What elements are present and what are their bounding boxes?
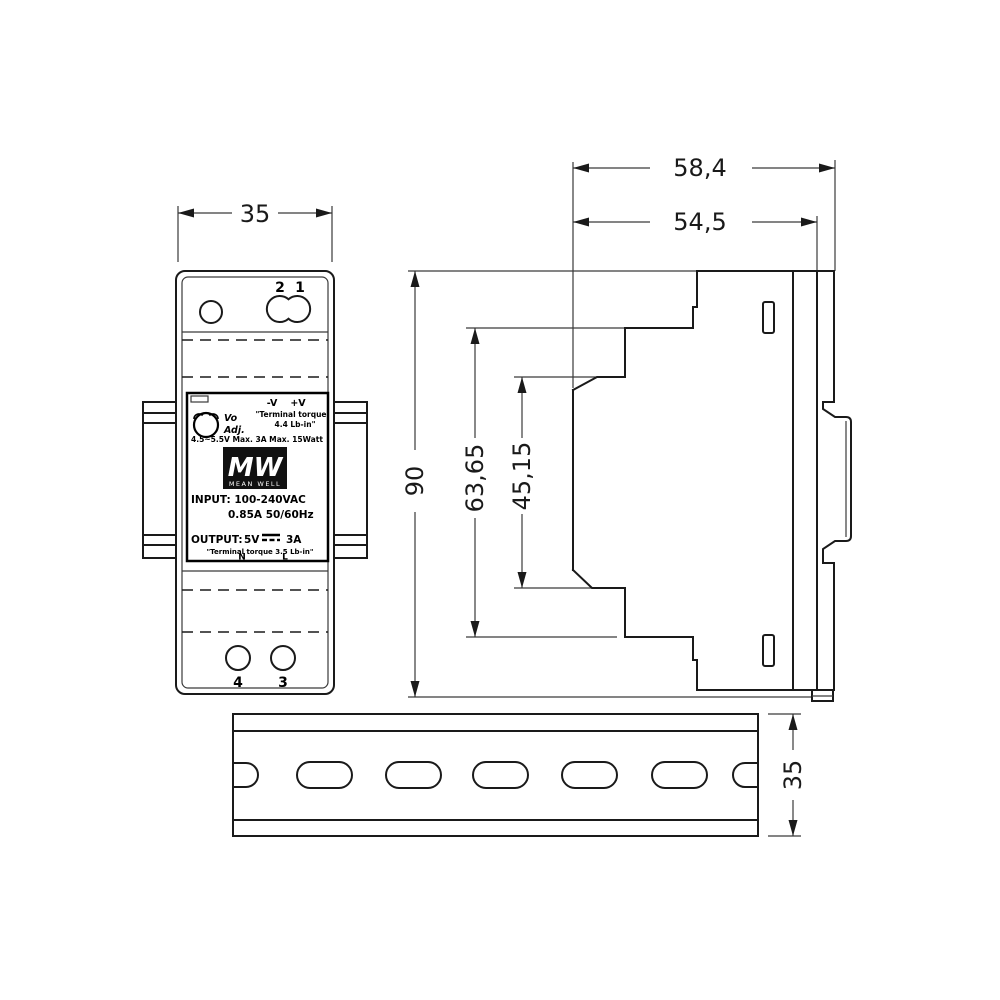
torque-note-top-line2: 4.4 Lb-in" <box>275 420 316 429</box>
din-rail-slots <box>233 762 758 788</box>
din-rail-outline <box>233 714 758 836</box>
dim-overall-depth-label: 58,4 <box>673 154 726 182</box>
side-view: 58,4 54,5 90 63,65 <box>401 154 851 701</box>
front-view: 2 1 Vo Adj. -V +V "Terminal torque 4.4 L… <box>143 200 367 694</box>
din-psu-dimension-drawing: 2 1 Vo Adj. -V +V "Terminal torque 4.4 L… <box>0 0 1000 1000</box>
technical-drawing-page: 2 1 Vo Adj. -V +V "Terminal torque 4.4 L… <box>0 0 1000 1000</box>
rating-label-plate: Vo Adj. -V +V "Terminal torque 4.4 Lb-in… <box>187 393 328 563</box>
torque-note-top-line1: "Terminal torque <box>255 410 326 419</box>
dim-rail-width: 35 <box>768 714 807 836</box>
dim-body-depth: 54,5 <box>573 208 817 236</box>
output-terminal-holes <box>267 296 310 322</box>
terminal-l-label: L <box>282 553 288 563</box>
terminal-4-label: 4 <box>233 675 243 691</box>
dim-front-width: 35 <box>178 200 332 262</box>
meanwell-logo: MW MEAN WELL <box>223 447 287 489</box>
dim-overall-height-label: 90 <box>401 466 429 497</box>
torque-note-bottom: "Terminal torque 3.5 Lb-in" <box>207 548 314 556</box>
vent-slot-bottom <box>763 635 774 666</box>
din-rail-end-notch-right <box>733 763 758 787</box>
output-label: OUTPUT: <box>191 534 243 546</box>
dim-mid-height-label: 63,65 <box>461 444 489 513</box>
vent-slot-top <box>763 302 774 333</box>
din-rail-stub-left <box>143 402 176 558</box>
terminal-2-label: 2 <box>275 280 285 296</box>
dim-rail-width-label: 35 <box>779 760 807 791</box>
meanwell-logo-name: MEAN WELL <box>229 480 281 488</box>
dim-mid-height: 63,65 <box>461 328 489 637</box>
din-rail-view: 35 <box>233 714 807 836</box>
output-voltage: 5V <box>244 534 260 546</box>
output-specs-line: 4.5~5.5V Max. 3A Max. 15Watt <box>191 435 323 444</box>
side-body-outline <box>573 271 834 690</box>
din-rail-stub-right <box>334 402 367 558</box>
input-terminal-hole-3 <box>271 646 295 670</box>
dim-overall-height: 90 <box>401 271 429 697</box>
output-current: 3A <box>286 534 302 546</box>
input-rating-line1: INPUT: 100-240VAC <box>191 494 306 506</box>
dim-front-height-label: 45,15 <box>508 442 536 511</box>
din-clip-channel <box>823 402 851 563</box>
rear-foot <box>812 690 833 701</box>
terminal-n-label: N <box>238 553 246 563</box>
din-rail-end-notch-left <box>233 763 258 787</box>
adjust-label-line1: Vo <box>224 413 238 424</box>
input-terminal-hole-4 <box>226 646 250 670</box>
polarity-positive-label: +V <box>290 398 306 409</box>
meanwell-logo-mark: MW <box>228 453 284 483</box>
input-rating-line2: 0.85A 50/60Hz <box>228 509 314 521</box>
terminal-3-label: 3 <box>278 675 288 691</box>
polarity-negative-label: -V <box>267 398 278 409</box>
dim-body-depth-label: 54,5 <box>673 208 726 236</box>
mounting-hole <box>200 301 222 323</box>
dim-front-height: 45,15 <box>508 377 536 588</box>
dim-overall-depth: 58,4 <box>573 154 835 182</box>
terminal-1-label: 1 <box>295 280 305 296</box>
dim-front-width-label: 35 <box>240 200 271 228</box>
